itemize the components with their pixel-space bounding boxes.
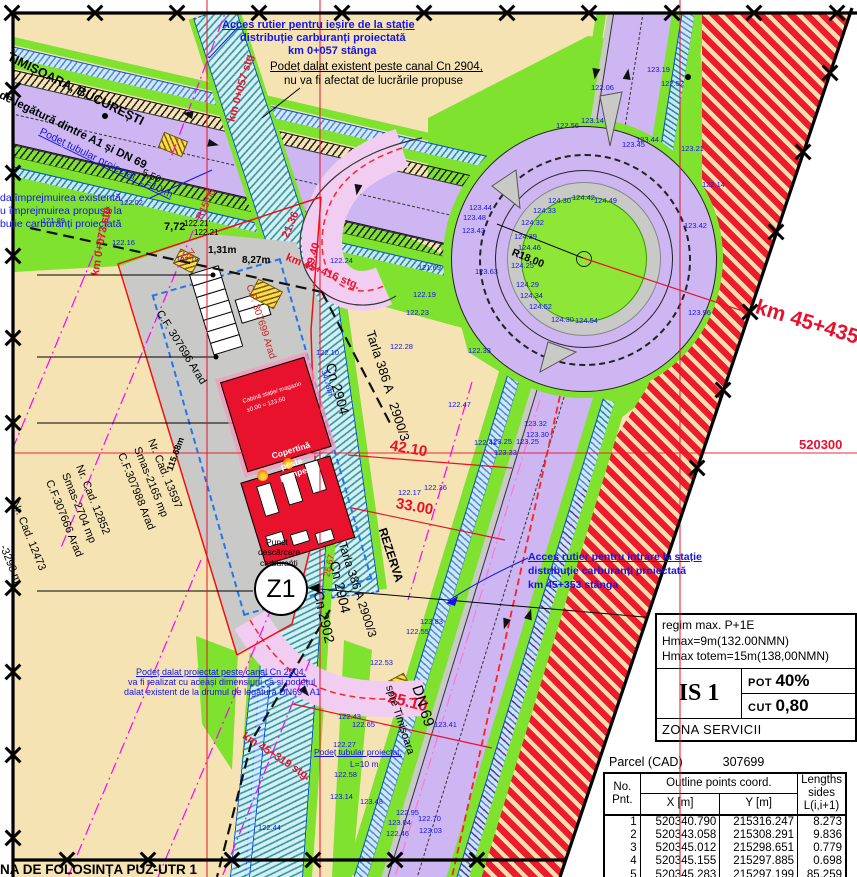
elevation-label: 123.14 — [581, 116, 604, 125]
elevation-label: 122.23 — [406, 308, 429, 317]
elevation-label: 122.58 — [334, 770, 357, 779]
elevation-label: 122.53 — [370, 658, 393, 667]
map-label: carburanți — [260, 559, 298, 568]
map-label: Acces rutier pentru ieșire de la stație — [222, 20, 415, 32]
elevation-label: 124.49 — [594, 196, 617, 205]
border-x-mark — [662, 3, 682, 23]
elevation-label: 122.10 — [316, 348, 339, 357]
border-x-mark — [467, 850, 487, 870]
map-label: 7,72 — [164, 222, 185, 234]
border-x-mark — [766, 222, 786, 242]
map-label: Podeț tubular proiectat, — [314, 748, 402, 757]
border-x-mark — [167, 3, 187, 23]
elevation-label: 122.16 — [112, 238, 135, 247]
elevation-label: 124.54 — [575, 316, 598, 325]
elevation-label: 123.63 — [475, 267, 498, 276]
elevation-label: 123.44 — [636, 135, 659, 144]
elevation-label: 124.34 — [520, 291, 543, 300]
elevation-label: 124.29 — [516, 280, 539, 289]
site-plan-canvas: Z1 regim max. P+1E Hmax=9m(132.00NMN) Hm… — [0, 0, 857, 877]
map-label: distribuție carburanți proiectată — [528, 566, 686, 577]
map-label: 520300 — [799, 438, 842, 452]
map-label: km 0+057 stânga — [288, 46, 376, 58]
map-label: nu va fi afectat de lucrările propuse — [284, 75, 463, 87]
elevation-label: 123.21 — [681, 144, 704, 153]
elevation-label: 122.06 — [591, 83, 614, 92]
elevation-label: 122.28 — [390, 342, 413, 351]
border-x-mark — [713, 380, 733, 400]
map-label: 1,31m — [208, 246, 236, 257]
elevation-label: 123.03 — [419, 826, 442, 835]
border-x-mark — [579, 3, 599, 23]
border-x-mark — [303, 850, 323, 870]
border-x-mark — [793, 142, 813, 162]
elevation-label: 124.39 — [514, 232, 537, 241]
elevation-label: 123.25 — [489, 437, 512, 446]
border-x-mark — [3, 163, 23, 183]
elevation-label: 123.32 — [524, 419, 547, 428]
border-x-mark — [414, 3, 434, 23]
map-label: NA DE FOLOSINȚA PUZ-UTR 1 — [0, 863, 197, 877]
elevation-label: 124.30 — [551, 315, 574, 324]
elevation-label: 122.56 — [556, 121, 579, 130]
elevation-label: 122.52 — [661, 79, 684, 88]
elevation-label: 122.14 — [702, 180, 725, 189]
elevation-label: 124.33 — [533, 206, 556, 215]
border-x-mark — [744, 3, 764, 23]
elevation-label: 123.83 — [420, 617, 443, 626]
elevation-label: 123.44 — [469, 203, 492, 212]
elevation-label: 124.42 — [572, 193, 595, 202]
border-x-mark — [2, 3, 22, 23]
map-label: 122.21 — [194, 229, 218, 237]
elevation-label: 122.70 — [418, 814, 441, 823]
elevation-label: 122.65 — [352, 720, 375, 729]
elevation-label: 122.24 — [330, 256, 353, 265]
elevation-label: 124.30 — [548, 196, 571, 205]
map-label: L=10 m — [350, 760, 379, 769]
border-x-mark — [385, 850, 405, 870]
border-x-mark — [3, 745, 23, 765]
elevation-label: 123.33 — [494, 448, 517, 457]
elevation-label: 122.44 — [258, 823, 281, 832]
border-x-mark — [827, 3, 847, 23]
map-label: Podeț dalat existent peste canal Cn 2904… — [270, 61, 483, 73]
map-label: Acces rutier pentru intrare la stație — [528, 552, 702, 563]
elevation-label: 123.43 — [462, 226, 485, 235]
elevation-label: 123.48 — [360, 797, 383, 806]
elevation-label: 123.25 — [516, 437, 539, 446]
elevation-label: 124.52 — [529, 302, 552, 311]
elevation-label: 122.46 — [386, 829, 409, 838]
elevation-label: 121.69 — [418, 263, 441, 272]
elevation-label: 124.32 — [521, 218, 544, 227]
border-x-mark — [497, 3, 517, 23]
elevation-label: 122.55 — [406, 627, 429, 636]
map-label: km 45+353 stânga — [528, 580, 618, 591]
elevation-label: 123.14 — [330, 792, 353, 801]
elevation-label: 122.33 — [468, 346, 491, 355]
sheet-border — [0, 0, 857, 877]
elevation-label: 122.36 — [424, 483, 447, 492]
border-x-mark — [3, 246, 23, 266]
elevation-label: 123.96 — [688, 308, 711, 317]
border-x-mark — [3, 413, 23, 433]
elevation-label: 122.02 — [120, 198, 143, 207]
border-x-mark — [222, 850, 242, 870]
elevation-label: 122.47 — [448, 400, 471, 409]
elevation-label: 123.48 — [463, 213, 486, 222]
border-x-mark — [820, 63, 840, 83]
elevation-label: 122.19 — [413, 290, 436, 299]
map-label: descărcare — [258, 548, 300, 557]
elevation-label: 123.42 — [684, 221, 707, 230]
border-x-mark — [3, 662, 23, 682]
map-label: distribuție carburanți proiectată — [240, 33, 406, 45]
elevation-label: 123.04 — [388, 818, 411, 827]
map-label: 8,27m — [242, 256, 270, 267]
map-label: dalat existent de la drumul de legătură … — [124, 688, 321, 697]
border-x-mark — [85, 3, 105, 23]
elevation-label: 123.41 — [434, 720, 457, 729]
border-x-mark — [3, 828, 23, 848]
map-label: da împrejmuirea existentă — [0, 193, 121, 204]
map-label: Punct — [266, 538, 288, 547]
border-x-mark — [3, 328, 23, 348]
elevation-label: 122.95 — [396, 808, 419, 817]
elevation-label: 123.19 — [647, 65, 670, 74]
border-x-mark — [687, 458, 707, 478]
